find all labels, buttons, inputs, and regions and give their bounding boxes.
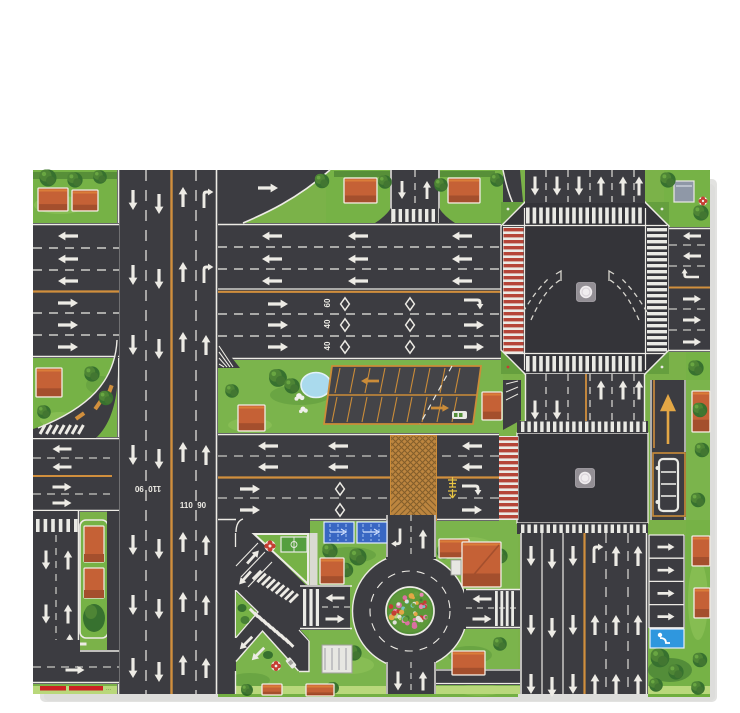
svg-text:···: ··· xyxy=(106,687,111,693)
